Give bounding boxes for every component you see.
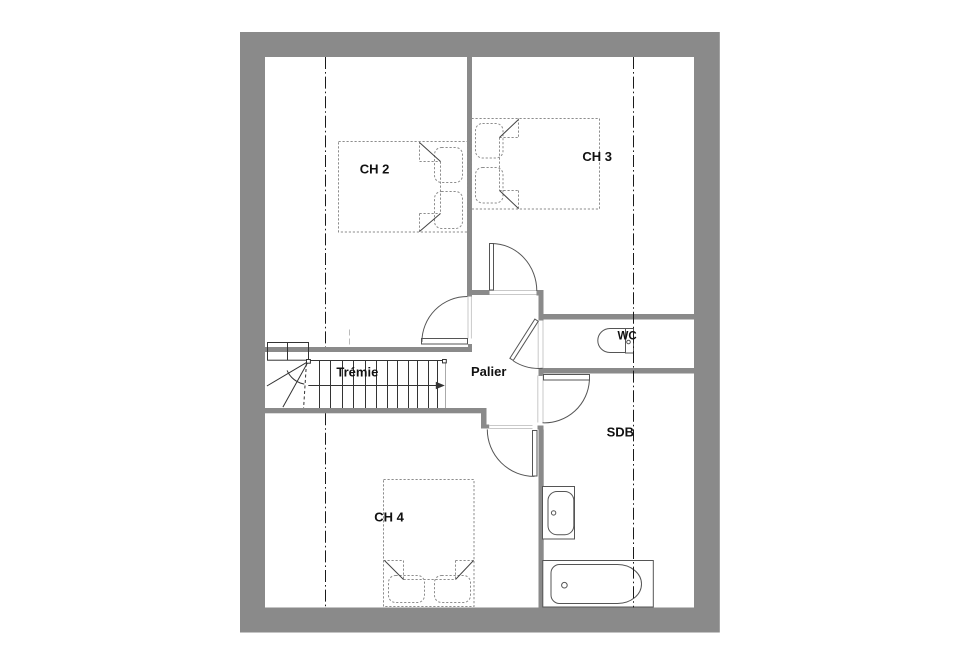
svg-text:CH 2: CH 2 (360, 161, 390, 176)
svg-text:Trémie: Trémie (336, 365, 378, 380)
svg-text:WC: WC (618, 331, 637, 343)
svg-text:CH 3: CH 3 (582, 149, 612, 164)
svg-text:Palier: Palier (471, 364, 506, 379)
svg-text:CH 4: CH 4 (374, 509, 404, 524)
svg-text:SDB: SDB (607, 424, 634, 439)
